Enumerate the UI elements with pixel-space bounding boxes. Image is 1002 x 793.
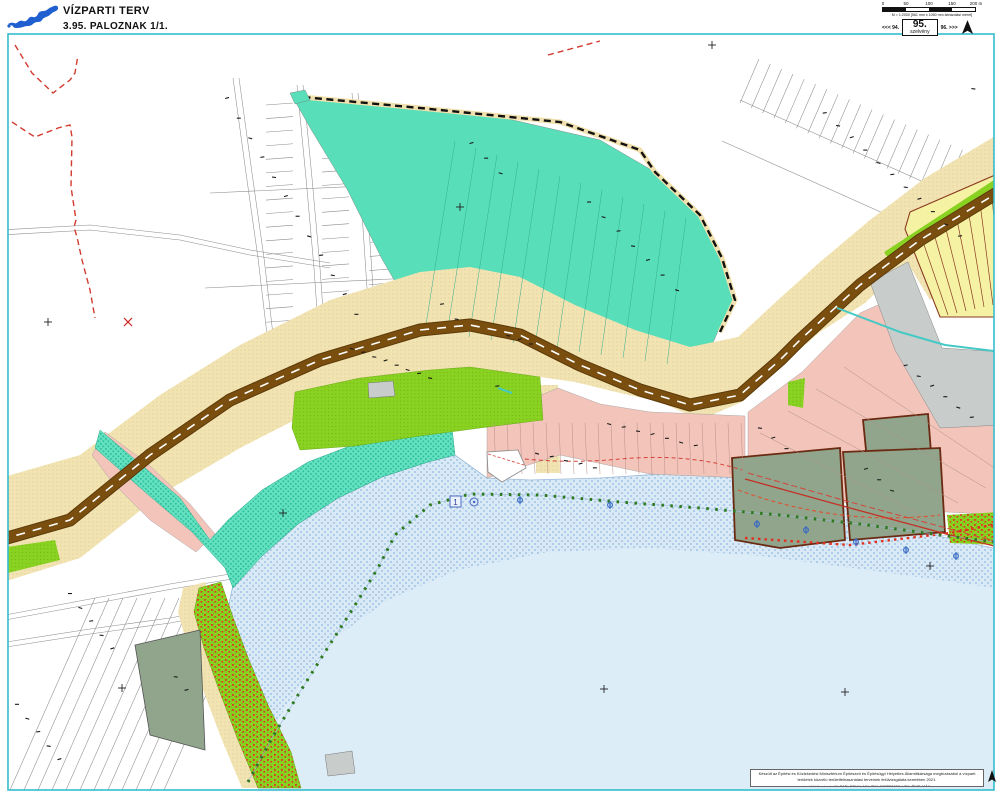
parking-gray: [368, 381, 395, 398]
plan-title: VÍZPARTI TERV: [63, 5, 150, 17]
attribution-box: Készült az Építési és Közlekedési Minisz…: [750, 769, 984, 787]
scale-note: M = 1:2000 [561 mm x 1050 mm ábrázolási …: [882, 13, 982, 17]
tick-150: 150: [948, 1, 956, 6]
scale-block: 0 50 100 150 200 m M = 1:2000 [561 mm x …: [882, 1, 994, 33]
current-sheet-box: 95. szelvény: [902, 19, 937, 36]
prev-sheet-link[interactable]: <<< 94.: [882, 25, 899, 31]
zone-lime-small-east: [788, 378, 805, 408]
attribution-line1: Készült az Építési és Közlekedési Minisz…: [753, 771, 981, 784]
sheet-header: VÍZPARTI TERV 3.95. PALOZNAK 1/1. 0 50 1…: [0, 0, 1002, 33]
mini-north-icon: [987, 770, 997, 784]
north-arrow-icon: [961, 20, 974, 35]
tick-0: 0: [882, 1, 885, 6]
next-sheet-link[interactable]: 96. >>>: [941, 25, 958, 31]
tick-50: 50: [903, 1, 908, 6]
water-marker-1: 1: [453, 498, 458, 507]
zoning-map[interactable]: 1: [0, 33, 1002, 793]
tick-100: 100: [925, 1, 933, 6]
sheet-title: 3.95. PALOZNAK 1/1.: [63, 21, 168, 32]
map-canvas[interactable]: 1: [0, 33, 1002, 793]
tick-200: 200 m: [970, 1, 983, 6]
map-sheet-page: VÍZPARTI TERV 3.95. PALOZNAK 1/1. 0 50 1…: [0, 0, 1002, 793]
attribution-line2: további források: MePAR, BFKH, MK, TIM, …: [753, 784, 981, 787]
balaton-lake-icon: [6, 4, 58, 30]
sheet-navigation: <<< 94. 95. szelvény 96. >>>: [882, 19, 994, 36]
sheet-word: szelvény: [910, 30, 929, 35]
scalebar: [882, 7, 976, 12]
gray-wedge-south: [325, 751, 355, 776]
